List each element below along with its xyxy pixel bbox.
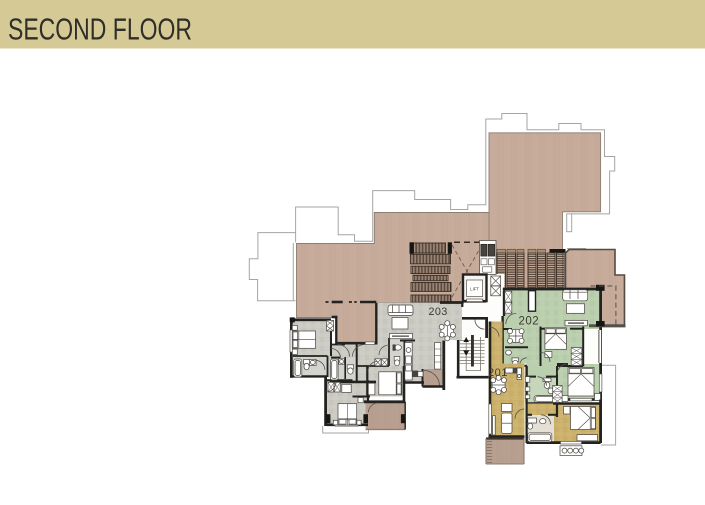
svg-text:LIFT: LIFT bbox=[470, 286, 479, 291]
svg-text:202: 202 bbox=[519, 316, 540, 328]
svg-text:203: 203 bbox=[429, 306, 448, 318]
svg-text:201: 201 bbox=[488, 367, 508, 379]
svg-text:SECOND FLOOR: SECOND FLOOR bbox=[8, 13, 192, 47]
